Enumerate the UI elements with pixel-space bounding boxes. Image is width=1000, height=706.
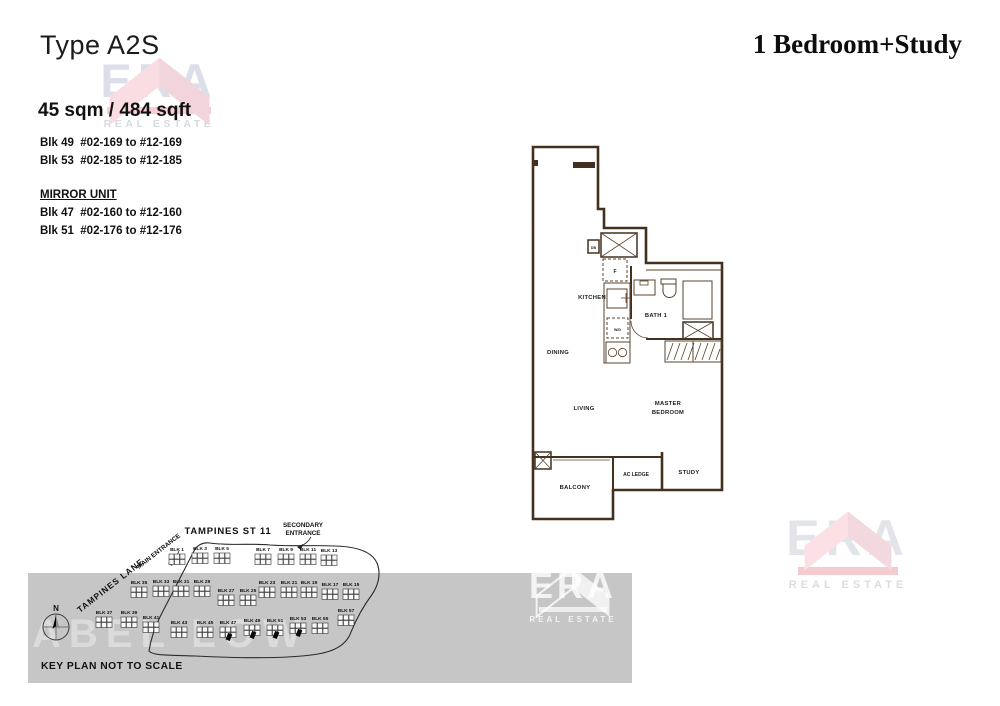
keyplan-block-label: BLK 15 — [343, 582, 360, 588]
kitchen-sink — [607, 289, 627, 308]
unit-type-title: Type A2S — [40, 30, 160, 61]
keyplan: TAMPINES ST 11 SECONDARY ENTRANCE MAIN E… — [25, 515, 397, 683]
room-label-ac-ledge: AC LEDGE — [623, 472, 650, 478]
era-roof-icon — [532, 566, 614, 618]
bath-sink — [634, 280, 655, 295]
floorplan: DB F W/D — [525, 140, 735, 530]
keyplan-block-label: BLK 5 — [215, 546, 229, 552]
wall-notch — [533, 160, 538, 166]
room-label-master-2: BEDROOM — [652, 410, 684, 416]
secondary-entrance-label-1: SECONDARY — [283, 522, 324, 529]
era-roof-icon — [791, 510, 905, 572]
db-label: DB — [591, 246, 597, 250]
keyplan-block-label: BLK 29 — [194, 579, 211, 585]
keyplan-block-label: BLK 51 — [267, 618, 284, 624]
keyplan-block-label: BLK 43 — [171, 620, 188, 626]
keyplan-block-label: BLK 33 — [153, 579, 170, 585]
era-watermark-bottomright: ERA REAL ESTATE — [788, 510, 908, 591]
keyplan-block-label: BLK 53 — [290, 616, 307, 622]
keyplan-block-label: BLK 39 — [121, 610, 138, 616]
block-range-item: Blk 51 #02-176 to #12-176 — [40, 222, 182, 240]
keyplan-block-label: BLK 17 — [322, 582, 339, 588]
service-shaft-right — [683, 322, 713, 339]
brochure-page: ABEL LOW ERA REAL ESTATE ERA REAL ESTATE… — [0, 0, 1000, 706]
room-label-bath: BATH 1 — [645, 313, 668, 319]
room-label-study: STUDY — [678, 470, 699, 476]
block-range-item: Blk 49 #02-169 to #12-169 — [40, 134, 182, 152]
toilet-cistern — [661, 279, 676, 284]
road-label-tampines-st: TAMPINES ST 11 — [184, 526, 271, 537]
bedroom-type-label: 1 Bedroom+Study — [753, 29, 962, 60]
compass-north-label: N — [53, 604, 59, 613]
keyplan-block-label: BLK 37 — [96, 610, 113, 616]
room-label-kitchen: KITCHEN — [578, 295, 606, 301]
shower — [683, 281, 712, 319]
unit-area-label: 45 sqm / 484 sqft — [38, 100, 191, 122]
kitchen-counter: W/D — [604, 283, 631, 363]
keyplan-block-label: BLK 23 — [259, 580, 276, 586]
room-label-dining: DINING — [547, 350, 569, 356]
keyplan-block-label: BLK 31 — [173, 579, 190, 585]
fridge-label: F — [613, 269, 616, 275]
secondary-entrance-label-2: ENTRANCE — [286, 530, 321, 537]
keyplan-block-label: BLK 21 — [281, 580, 298, 586]
washer-label: W/D — [614, 328, 621, 332]
keyplan-block-label: BLK 11 — [300, 547, 317, 553]
balcony-details — [535, 452, 610, 469]
keyplan-block-label: BLK 25 — [240, 588, 257, 594]
keyplan-block-label: BLK 1 — [170, 547, 184, 553]
service-shaft-top — [601, 233, 637, 257]
compass: N — [43, 604, 69, 640]
db-box: DB — [588, 240, 599, 253]
mirror-unit-section: MIRROR UNIT Blk 47 #02-160 to #12-160 Bl… — [40, 186, 182, 240]
keyplan-block-label: BLK 47 — [220, 620, 237, 626]
era-watermark-center: ERA REAL ESTATE — [529, 566, 617, 624]
room-label-living: LIVING — [573, 406, 594, 412]
room-label-master-1: MASTER — [655, 401, 682, 407]
toilet-bowl — [663, 284, 676, 298]
block-range-item: Blk 47 #02-160 to #12-160 — [40, 204, 182, 222]
room-label-balcony: BALCONY — [560, 485, 591, 491]
keyplan-block-label: BLK 55 — [312, 616, 329, 622]
fridge: F — [603, 259, 627, 281]
keyplan-block-label: BLK 49 — [244, 618, 261, 624]
keyplan-block-label: BLK 7 — [256, 547, 270, 553]
keyplan-block-label: BLK 19 — [301, 580, 318, 586]
keyplan-block-label: BLK 13 — [321, 548, 338, 554]
block-range-item: Blk 53 #02-185 to #12-185 — [40, 152, 182, 170]
entrance-door-leaf — [573, 162, 595, 168]
keyplan-block-label: BLK 3 — [193, 546, 207, 552]
era-logo-subtext: REAL ESTATE — [789, 579, 908, 591]
keyplan-block-label: BLK 45 — [197, 620, 214, 626]
keyplan-block-label: BLK 9 — [279, 547, 293, 553]
mirror-unit-heading: MIRROR UNIT — [40, 186, 182, 204]
bath-door-arc — [631, 321, 648, 338]
keyplan-block-label: BLK 57 — [338, 608, 355, 614]
keyplan-block-label: BLK 35 — [131, 580, 148, 586]
keyplan-note: KEY PLAN NOT TO SCALE — [41, 661, 183, 672]
block-range-list: Blk 49 #02-169 to #12-169 Blk 53 #02-185… — [40, 134, 182, 170]
keyplan-block-label: BLK 41 — [143, 615, 160, 621]
keyplan-block-label: BLK 27 — [218, 588, 235, 594]
wardrobe — [665, 341, 721, 362]
